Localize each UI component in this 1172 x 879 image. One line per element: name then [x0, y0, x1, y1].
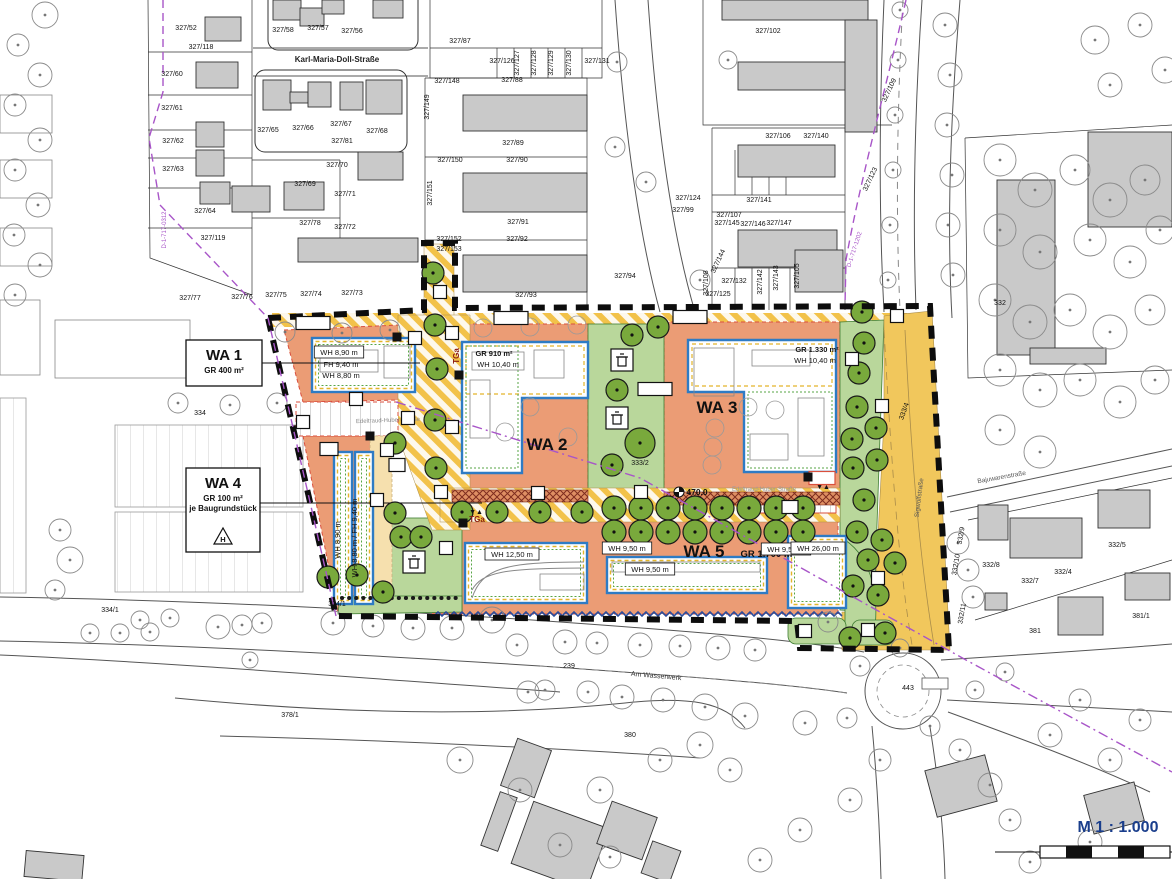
parcel-label: 332/5: [1108, 542, 1126, 549]
tree-center-dot: [372, 625, 375, 628]
tree-center-dot: [54, 589, 57, 592]
parcel-label: 327/93: [515, 292, 537, 299]
existing-building: [1010, 518, 1082, 558]
existing-building: [232, 186, 270, 212]
tree-center-dot: [538, 510, 541, 513]
marker-box: [494, 312, 528, 325]
tree-center-dot: [801, 530, 804, 533]
marker-box: [402, 412, 415, 425]
m-marker-box: [393, 333, 402, 342]
parcel-label: 327/152: [436, 236, 461, 243]
marker-box: [846, 353, 859, 366]
tree-center-dot: [880, 538, 883, 541]
outline-structure: [0, 95, 52, 133]
tree-center-dot: [860, 310, 863, 313]
height-annotation: WH 10,40 m: [794, 356, 836, 365]
parcel-label: 327/153: [436, 246, 461, 253]
parcel-label: 327/124: [675, 195, 700, 202]
parcel-label: 327/72: [334, 224, 356, 231]
parcel-label: 327/126: [489, 58, 514, 65]
tree-center-dot: [17, 44, 20, 47]
tree-center-dot: [850, 437, 853, 440]
parcel-label: 327/99: [672, 207, 694, 214]
tree-center-dot: [855, 405, 858, 408]
height-annotation: GR 910 m²: [475, 349, 513, 358]
existing-building: [196, 122, 224, 147]
tree-center-dot: [801, 506, 804, 509]
tree-center-dot: [621, 696, 624, 699]
scale-bar-group: M 1 : 1.000: [995, 819, 1172, 858]
site-plan-map: 327/52327/118327/58327/57327/56327/60327…: [0, 0, 1172, 879]
tree-center-dot: [14, 104, 17, 107]
parcel-label: 327/106: [765, 133, 790, 140]
tree-center-dot: [639, 644, 642, 647]
marker-box: [635, 486, 648, 499]
tree-center-dot: [39, 264, 42, 267]
road-line: [615, 0, 660, 312]
tga-label: TGa: [469, 515, 485, 524]
existing-building: [340, 82, 363, 110]
tree-center-dot: [747, 506, 750, 509]
tree-center-dot: [149, 631, 152, 634]
tree-center-dot: [897, 59, 900, 62]
tree-center-dot: [1029, 321, 1032, 324]
existing-building: [463, 95, 587, 131]
parcel-label: 327/151: [427, 180, 434, 205]
m-marker-box: [804, 473, 813, 482]
tree-center-dot: [662, 699, 665, 702]
tree-center-dot: [999, 369, 1002, 372]
road-line: [175, 698, 745, 728]
scale-bar-segment: [1066, 846, 1092, 858]
parcel-label: 327/77: [179, 295, 201, 302]
parcel-label: 332/8: [982, 562, 1000, 569]
marker-box: [435, 486, 448, 499]
tree-center-dot: [14, 169, 17, 172]
parking-grid: [0, 398, 26, 593]
tree-center-dot: [899, 9, 902, 12]
tree-center-dot: [1129, 261, 1132, 264]
parcel-label: 327/56: [341, 28, 363, 35]
parcel-label: 327/73: [341, 290, 363, 297]
marker-box: [532, 487, 545, 500]
marker-box: [440, 542, 453, 555]
marker-box: [799, 625, 812, 638]
parcel-label: 327/66: [292, 125, 314, 132]
height-annotation: WH 9,50 m: [608, 544, 646, 553]
tree-center-dot: [630, 333, 633, 336]
parcel-label: 327/130: [566, 50, 573, 75]
existing-building: [1058, 597, 1103, 635]
tree-center-dot: [727, 59, 730, 62]
tree-center-dot: [717, 647, 720, 650]
tree-center-dot: [887, 279, 890, 282]
tree-center-dot: [699, 279, 702, 282]
parcel-label: 333/2: [631, 460, 649, 467]
parcel-label: 327/89: [502, 140, 524, 147]
parcel-label: 327/62: [162, 138, 184, 145]
tree-center-dot: [261, 622, 264, 625]
tree-center-dot: [656, 325, 659, 328]
tree-center-dot: [759, 859, 762, 862]
tree-center-dot: [855, 530, 858, 533]
existing-building: [200, 182, 230, 204]
marker-box: [782, 501, 798, 514]
parcel-label: 327/102: [755, 28, 780, 35]
parcel-label: 239: [563, 663, 575, 670]
tree-center-dot: [952, 274, 955, 277]
existing-building: [205, 17, 241, 41]
parcel-label: 334/1: [101, 607, 119, 614]
tree-center-dot: [944, 24, 947, 27]
scale-label: M 1 : 1.000: [1078, 819, 1159, 836]
tree-center-dot: [241, 624, 244, 627]
tree-center-dot: [1074, 169, 1077, 172]
parcel-label: 327/74: [300, 291, 322, 298]
tree-center-dot: [999, 229, 1002, 232]
height-annotation: WH 9,50 m: [631, 565, 669, 574]
tree-center-dot: [419, 535, 422, 538]
scale-bar-segment: [1118, 846, 1144, 858]
parcel-label: 327/76: [231, 294, 253, 301]
height-annotation: WH 8,80 m: [322, 371, 360, 380]
tree-center-dot: [610, 463, 613, 466]
tree-center-dot: [693, 506, 696, 509]
parcel-label: 327/90: [506, 157, 528, 164]
parcel-label: 332: [994, 300, 1006, 307]
tree-center-dot: [720, 506, 723, 509]
tree-center-dot: [729, 769, 732, 772]
tree-center-dot: [893, 561, 896, 564]
tree-center-dot: [774, 506, 777, 509]
tree-center-dot: [516, 644, 519, 647]
zone-gr: GR 400 m²: [204, 366, 244, 375]
tree-center-dot: [1094, 39, 1097, 42]
parcel-label: 327/141: [746, 197, 771, 204]
tree-center-dot: [169, 617, 172, 620]
tree-center-dot: [967, 569, 970, 572]
tree-center-dot: [947, 224, 950, 227]
road-line: [950, 0, 960, 318]
m-marker-box: [455, 371, 464, 380]
tree-center-dot: [874, 426, 877, 429]
parcel-label: 332/11: [957, 603, 968, 625]
tree-center-dot: [638, 441, 641, 444]
tree-center-dot: [332, 622, 335, 625]
crossing-island: [922, 678, 948, 689]
height-annotation: WH 12,50 m: [491, 550, 533, 559]
road-line: [648, 0, 695, 312]
tree-center-dot: [433, 323, 436, 326]
outline-structure: [0, 160, 52, 198]
zone-title: WA 4: [205, 475, 242, 492]
road-line: [0, 655, 560, 692]
existing-building: [300, 8, 324, 26]
tree-center-dot: [341, 332, 344, 335]
tree-center-dot: [412, 627, 415, 630]
marker-box: [862, 624, 875, 637]
street-label: Edeltraud-Huber-Straße: [732, 487, 797, 493]
marker-box: [638, 383, 672, 396]
existing-building: [308, 82, 331, 107]
parcel-label: 327/94: [614, 273, 636, 280]
tree-center-dot: [1109, 199, 1112, 202]
tree-center-dot: [974, 689, 977, 692]
tree-center-dot: [876, 593, 879, 596]
existing-building: [481, 792, 517, 852]
road-line: [880, 0, 884, 312]
tree-center-dot: [1079, 699, 1082, 702]
tree-center-dot: [744, 715, 747, 718]
tree-center-dot: [699, 744, 702, 747]
tree-existing-icon: [1152, 57, 1172, 83]
existing-building: [273, 0, 301, 20]
height-annotation: WH 8,90 m: [320, 348, 358, 357]
parcel-label: 327/64: [194, 208, 216, 215]
tree-center-dot: [89, 632, 92, 635]
tree-center-dot: [1144, 179, 1147, 182]
parcel-label: 327/75: [265, 292, 287, 299]
parcel-label: 380: [624, 732, 636, 739]
tree-center-dot: [614, 146, 617, 149]
parcel-label: 327/63: [162, 166, 184, 173]
tree-center-dot: [666, 506, 669, 509]
tree-center-dot: [883, 631, 886, 634]
tree-center-dot: [460, 510, 463, 513]
tree-center-dot: [580, 510, 583, 513]
tree-center-dot: [37, 204, 40, 207]
monument-ref-label: D-1-717-1202: [846, 231, 863, 269]
tree-center-dot: [527, 691, 530, 694]
tree-center-dot: [989, 784, 992, 787]
road-centerline: [540, 666, 847, 693]
tree-center-dot: [177, 402, 180, 405]
marker-box: [891, 310, 904, 323]
tree-center-dot: [119, 632, 122, 635]
parcel-label: 332/7: [1021, 578, 1039, 585]
parcel-label: 332/4: [1054, 569, 1072, 576]
tree-center-dot: [1109, 84, 1112, 87]
parcel-label: 381: [1029, 628, 1041, 635]
tree-center-dot: [559, 844, 562, 847]
existing-building: [722, 0, 868, 20]
tree-center-dot: [929, 725, 932, 728]
tree-center-dot: [1089, 239, 1092, 242]
tree-center-dot: [639, 530, 642, 533]
street-label: Karl-Maria-Doll-Straße: [295, 55, 380, 64]
tree-center-dot: [1049, 734, 1052, 737]
tree-center-dot: [866, 558, 869, 561]
parcel-label: 443: [902, 685, 914, 692]
tree-center-dot: [804, 722, 807, 725]
tree-center-dot: [949, 74, 952, 77]
existing-building: [373, 0, 403, 18]
tree-center-dot: [659, 759, 662, 762]
marker-box: [673, 311, 707, 324]
marker-box: [320, 443, 338, 456]
road-line: [0, 641, 847, 693]
tree-center-dot: [851, 584, 854, 587]
tree-center-dot: [693, 530, 696, 533]
tree-center-dot: [435, 367, 438, 370]
parcel-label: 327/61: [161, 105, 183, 112]
tree-center-dot: [69, 559, 72, 562]
m-marker-box: [459, 519, 468, 528]
parcel-label: 334/1: [328, 601, 346, 608]
tree-center-dot: [459, 759, 462, 762]
parcel-label: 327/87: [449, 38, 471, 45]
parcel-label: 327/147: [766, 220, 791, 227]
height-annotation: GR 1.330 m²: [795, 345, 839, 354]
parcel-label: 332/9: [957, 526, 967, 545]
road-centerline: [897, 0, 903, 310]
parcel-label: 327/92: [506, 236, 528, 243]
tree-center-dot: [1159, 229, 1162, 232]
tree-center-dot: [827, 621, 830, 624]
tree-center-dot: [892, 169, 895, 172]
existing-building: [985, 593, 1007, 610]
zone-title: WA 1: [206, 347, 242, 364]
existing-building: [845, 20, 877, 132]
existing-building: [511, 801, 609, 879]
tree-center-dot: [799, 829, 802, 832]
tree-center-dot: [393, 511, 396, 514]
parcel-label: 327/145: [714, 220, 739, 227]
tree-center-dot: [14, 294, 17, 297]
tree-center-dot: [889, 224, 892, 227]
tree-center-dot: [862, 498, 865, 501]
parcel-label: 327/105: [794, 263, 801, 288]
parcel-label: 327/52: [175, 25, 197, 32]
tree-center-dot: [587, 691, 590, 694]
tree-center-dot: [851, 466, 854, 469]
tga-label: TGa: [452, 348, 461, 364]
tree-center-dot: [434, 466, 437, 469]
marker-box: [350, 393, 363, 406]
tree-center-dot: [1069, 309, 1072, 312]
parcel-label: 327/60: [161, 71, 183, 78]
tree-center-dot: [389, 329, 392, 332]
tree-center-dot: [1139, 24, 1142, 27]
tree-center-dot: [1164, 69, 1167, 72]
marker-box: [297, 416, 310, 429]
tree-center-dot: [615, 388, 618, 391]
zone-label: WA 5: [684, 542, 725, 561]
tree-center-dot: [999, 159, 1002, 162]
waste-bin-box: [606, 407, 628, 429]
road-line: [941, 644, 1172, 660]
triangle-symbol: H: [220, 535, 225, 544]
existing-building: [322, 0, 344, 14]
tree-center-dot: [875, 458, 878, 461]
parcel-label: 327/69: [294, 181, 316, 188]
tree-center-dot: [1034, 189, 1037, 192]
parcel-label: 327/129: [548, 50, 555, 75]
existing-building: [1030, 348, 1106, 364]
road-line: [914, 0, 922, 310]
parcel-label: 327/149: [424, 94, 431, 119]
tree-center-dot: [612, 506, 615, 509]
outline-structure: [0, 300, 40, 375]
marker-box: [872, 572, 885, 585]
parcel-label: 381/1: [1132, 613, 1150, 620]
existing-building: [795, 250, 843, 292]
marker-box: [876, 400, 889, 413]
tree-center-dot: [276, 402, 279, 405]
parcel-label: 327/125: [705, 291, 730, 298]
height-annotation: WH 26,00 m: [797, 544, 839, 553]
parcel-label: 327/91: [507, 219, 529, 226]
tree-center-dot: [639, 506, 642, 509]
parcel-label: 327/68: [366, 128, 388, 135]
parcel-label: 327/57: [307, 25, 329, 32]
parcel-label: 327/71: [334, 191, 356, 198]
waste-bin-box: [611, 349, 633, 371]
tree-center-dot: [451, 627, 454, 630]
tree-center-dot: [431, 271, 434, 274]
parcel-label: 327/143: [773, 265, 780, 290]
existing-building: [1125, 573, 1170, 600]
tree-center-dot: [946, 124, 949, 127]
parcel-label: 327/65: [257, 127, 279, 134]
tree-center-dot: [229, 404, 232, 407]
tree-center-dot: [857, 371, 860, 374]
tree-center-dot: [666, 530, 669, 533]
scale-bar: [1040, 846, 1170, 858]
parcel-label: 327/150: [437, 157, 462, 164]
tree-center-dot: [599, 789, 602, 792]
tree-center-dot: [1149, 309, 1152, 312]
marker-box: [446, 327, 459, 340]
existing-building: [196, 62, 238, 88]
existing-building: [366, 80, 402, 114]
tree-center-dot: [1039, 251, 1042, 254]
tree-center-dot: [1029, 861, 1032, 864]
parcel-label: 327/88: [501, 77, 523, 84]
tree-center-dot: [399, 535, 402, 538]
existing-building: [738, 145, 835, 177]
parcel-label: 327/148: [434, 78, 459, 85]
tree-center-dot: [249, 659, 252, 662]
existing-building: [24, 851, 84, 879]
marker-box: [409, 332, 422, 345]
parcel-label: 327/107: [716, 212, 741, 219]
marker-box: [434, 286, 447, 299]
parcel-label: 327/128: [531, 50, 538, 75]
tree-center-dot: [564, 641, 567, 644]
existing-building: [738, 62, 846, 90]
m-marker-box: [366, 432, 375, 441]
tree-center-dot: [1039, 389, 1042, 392]
marker-box: [371, 494, 384, 507]
existing-building: [978, 505, 1008, 540]
height-annotation: WH 8,80 m / FH 9,40 m: [350, 499, 359, 578]
tree-center-dot: [1004, 671, 1007, 674]
existing-building: [263, 80, 291, 110]
tree-center-dot: [217, 626, 220, 629]
tree-center-dot: [848, 636, 851, 639]
parcel-label: 332/10: [951, 553, 962, 575]
parcel-label: 327/81: [331, 138, 353, 145]
existing-building: [358, 152, 403, 180]
tree-center-dot: [704, 706, 707, 709]
tree-center-dot: [679, 645, 682, 648]
tree-center-dot: [39, 139, 42, 142]
tga-strip: [452, 490, 588, 502]
parcel-label: 327/144: [710, 248, 727, 274]
height-annotation: FH 9,40 m: [323, 360, 358, 369]
tree-center-dot: [284, 331, 287, 334]
